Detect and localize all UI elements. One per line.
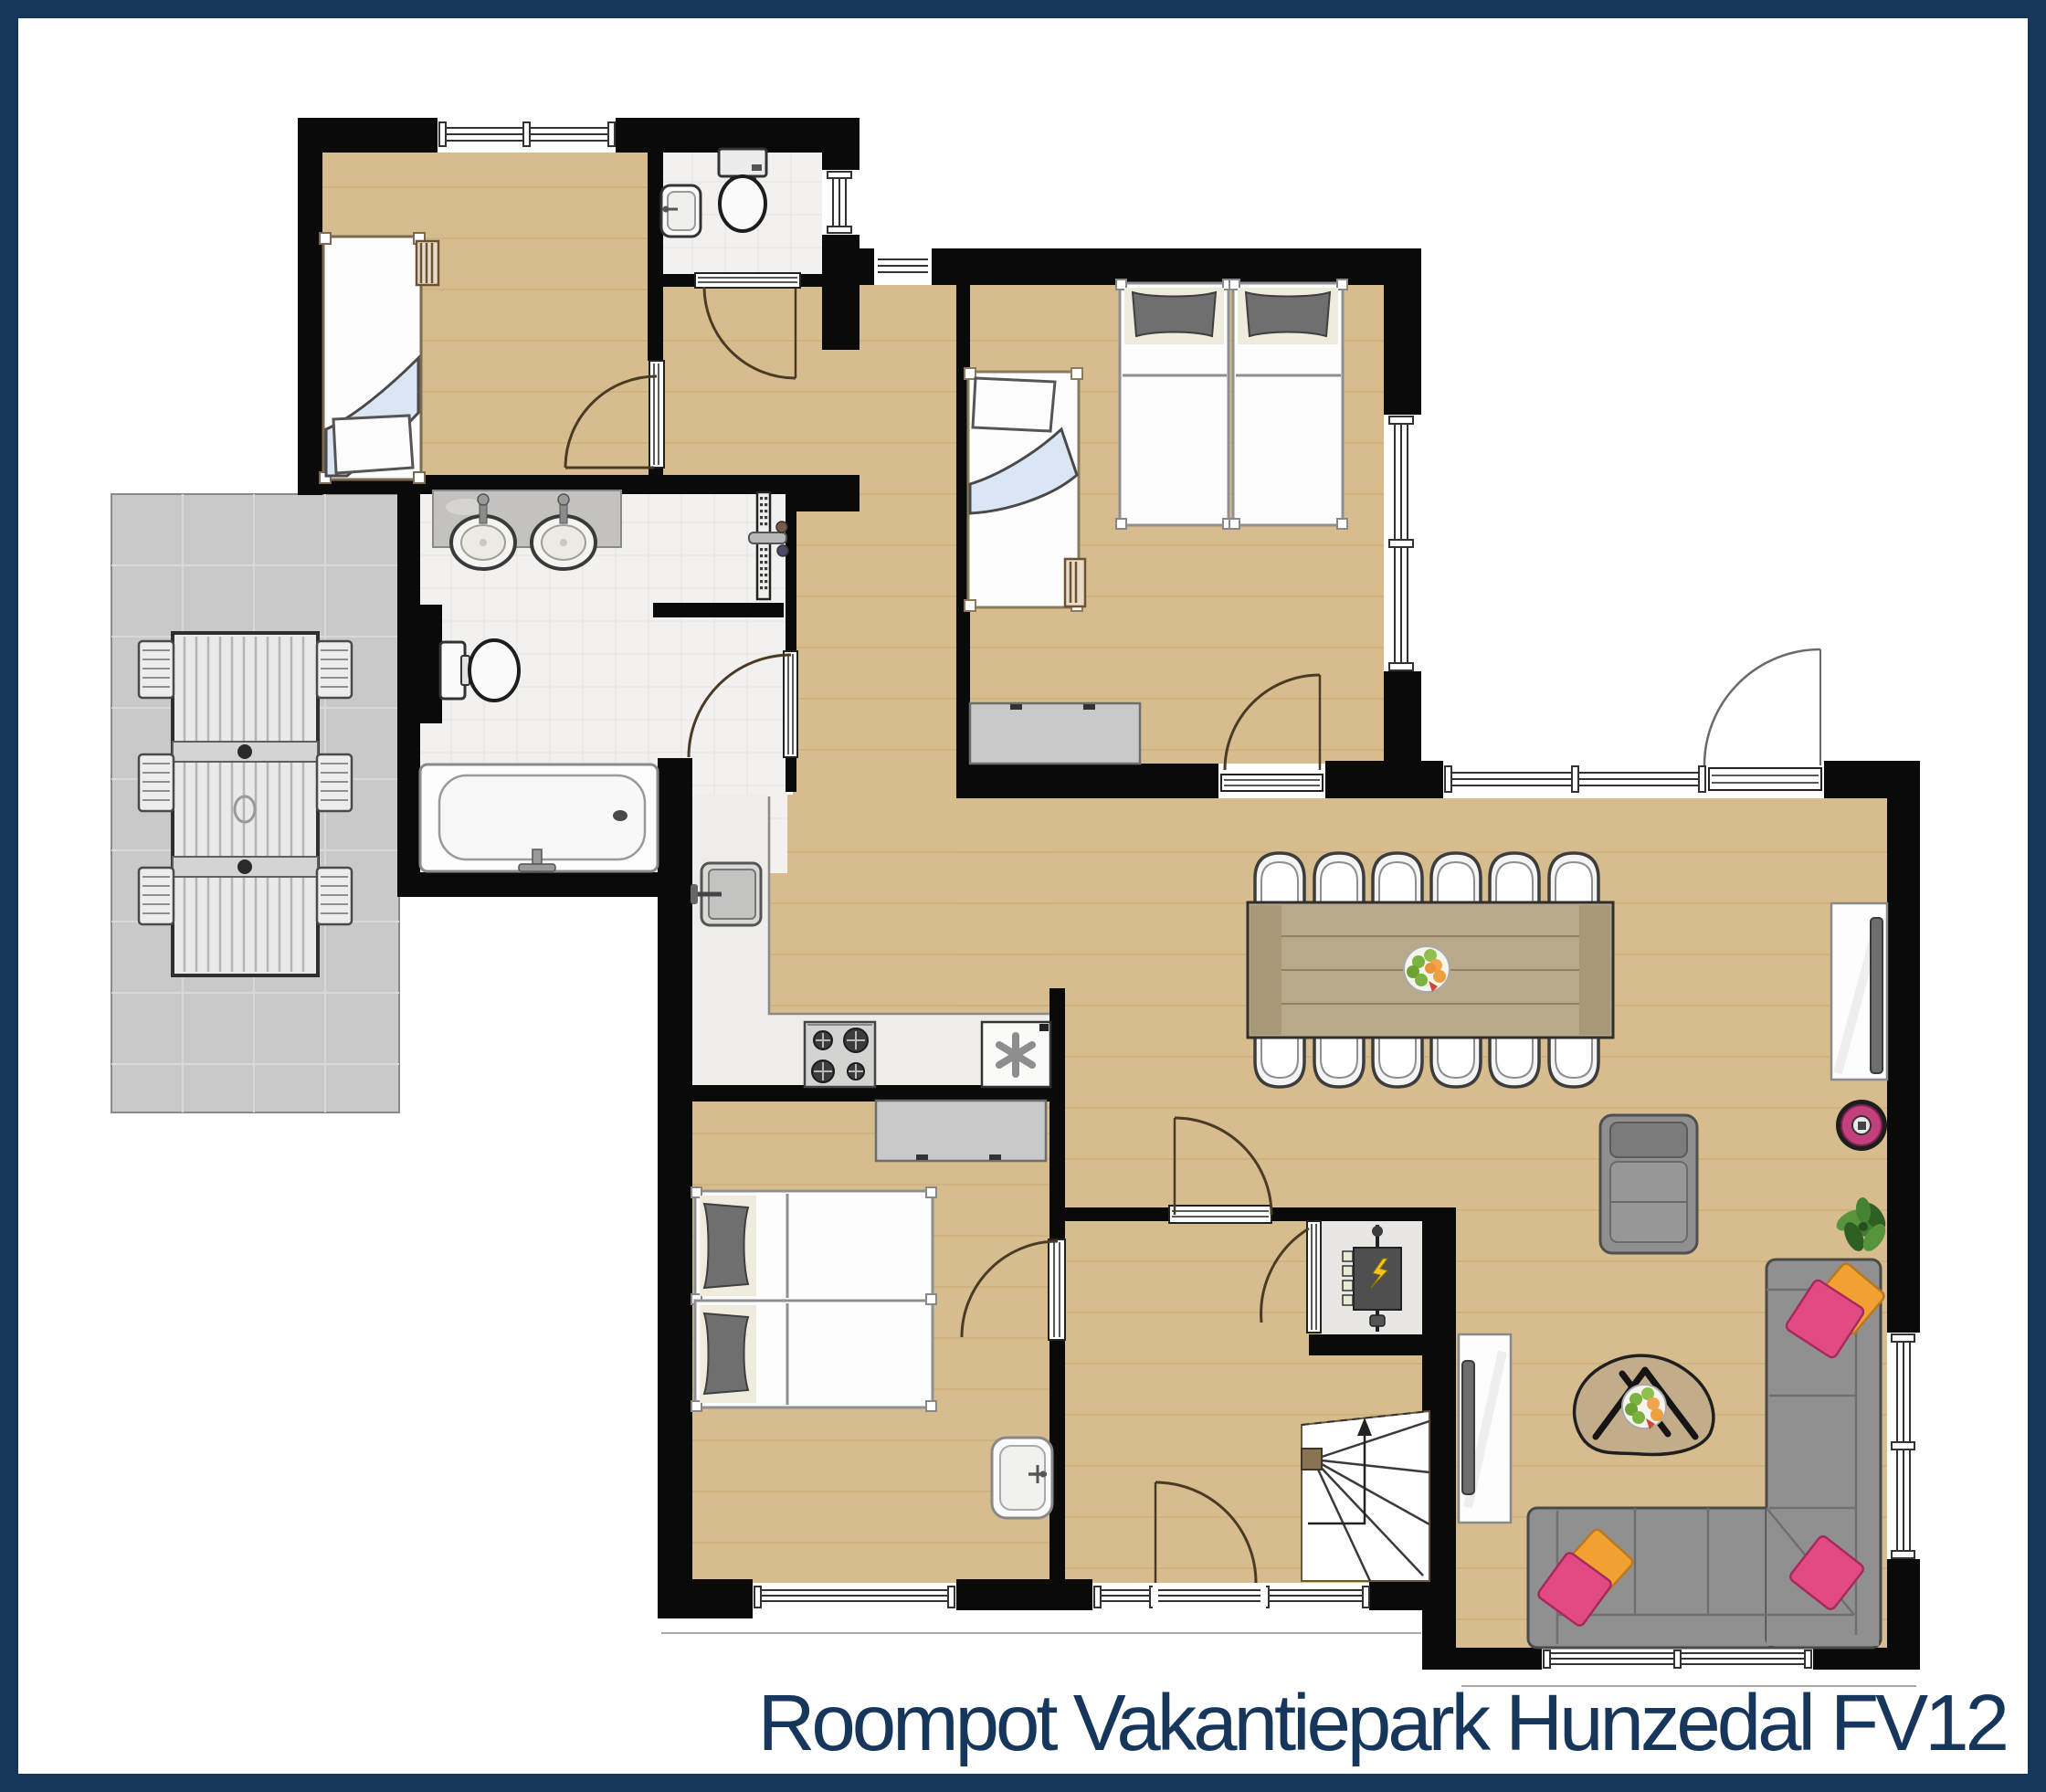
svg-text:Roompot Vakantiepark Hunzedal: Roompot Vakantiepark Hunzedal FV12 [758, 1679, 2007, 1767]
